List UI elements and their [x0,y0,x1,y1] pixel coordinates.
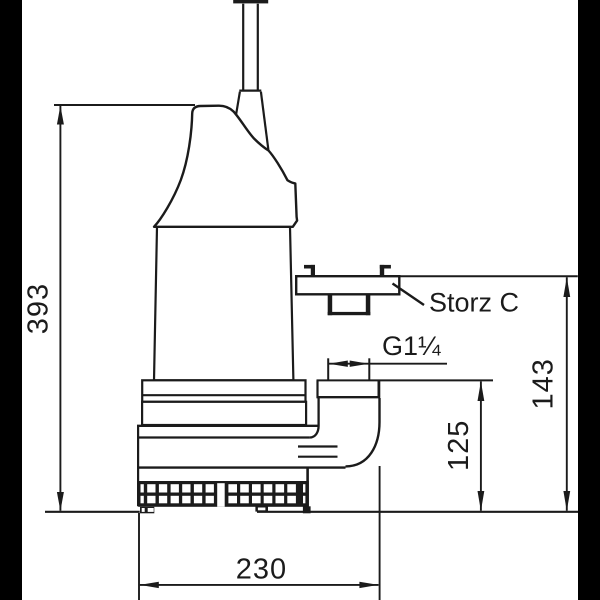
svg-text:Storz C: Storz C [429,288,519,318]
svg-text:G1¼: G1¼ [382,331,441,361]
svg-text:393: 393 [22,283,54,334]
svg-text:143: 143 [528,358,560,409]
svg-text:125: 125 [443,420,475,471]
svg-text:230: 230 [236,554,287,586]
